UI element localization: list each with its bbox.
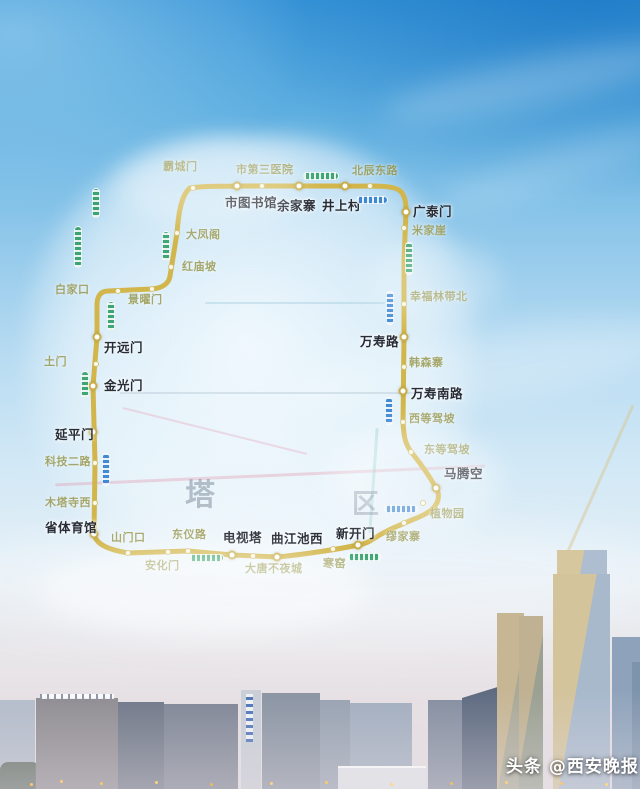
station-label: 西等驾坡 (409, 410, 455, 426)
station-label: 科技二路 (45, 453, 91, 469)
station-dot (367, 183, 373, 189)
station-label: 韩森寨 (409, 354, 444, 370)
station-label: 井上村 (322, 195, 361, 214)
station-label: 白家口 (55, 281, 90, 297)
station-label: 万寿南路 (411, 383, 463, 402)
train-icon (74, 226, 82, 268)
train-icon (102, 453, 110, 486)
poster-image: 塔区 霸城门市第三医院北辰东路市图书馆余家寨井上村广泰门米家崖幸福林带北万寿路韩… (0, 0, 640, 789)
station-dot (92, 460, 98, 466)
station-dot (89, 382, 98, 391)
station-dot (402, 208, 411, 217)
cloud-overlay (115, 145, 305, 225)
station-label: 米家崖 (412, 222, 447, 238)
station-dot (93, 333, 102, 342)
station-label: 土门 (44, 353, 67, 369)
station-label: 延平门 (55, 424, 94, 443)
station-label: 金光门 (104, 375, 143, 394)
train-icon (92, 188, 100, 218)
station-dot (93, 361, 99, 367)
train-icon (162, 231, 170, 261)
station-dot (399, 387, 408, 396)
train-icon (107, 301, 115, 331)
station-label: 开远门 (104, 337, 143, 356)
station-label: 大凤阁 (186, 226, 221, 242)
skyscraper-crown (557, 550, 607, 576)
station-dot (92, 500, 98, 506)
watermark: 头条 @西安晚报 (506, 752, 639, 777)
station-label: 木塔寺西 (45, 494, 91, 510)
station-label: 广泰门 (413, 201, 452, 220)
street-lights (60, 780, 63, 783)
train-icon (81, 371, 89, 398)
train-icon (303, 172, 339, 180)
train-icon (356, 196, 388, 204)
station-dot (401, 225, 407, 231)
station-dot (400, 419, 406, 425)
train-icon (385, 397, 393, 425)
station-dot (401, 364, 407, 370)
station-label: 省体育馆 (45, 517, 97, 536)
station-dot (341, 182, 350, 191)
station-dot (168, 264, 174, 270)
station-dot (174, 230, 180, 236)
station-dot (115, 288, 121, 294)
station-label: 景曜门 (128, 291, 163, 307)
cloud-overlay (370, 240, 500, 325)
cloud-overlay (330, 425, 500, 535)
station-label: 万寿路 (360, 331, 399, 350)
station-label: 北辰东路 (352, 162, 398, 178)
station-dot (400, 333, 409, 342)
station-label: 红庙坡 (182, 258, 217, 274)
